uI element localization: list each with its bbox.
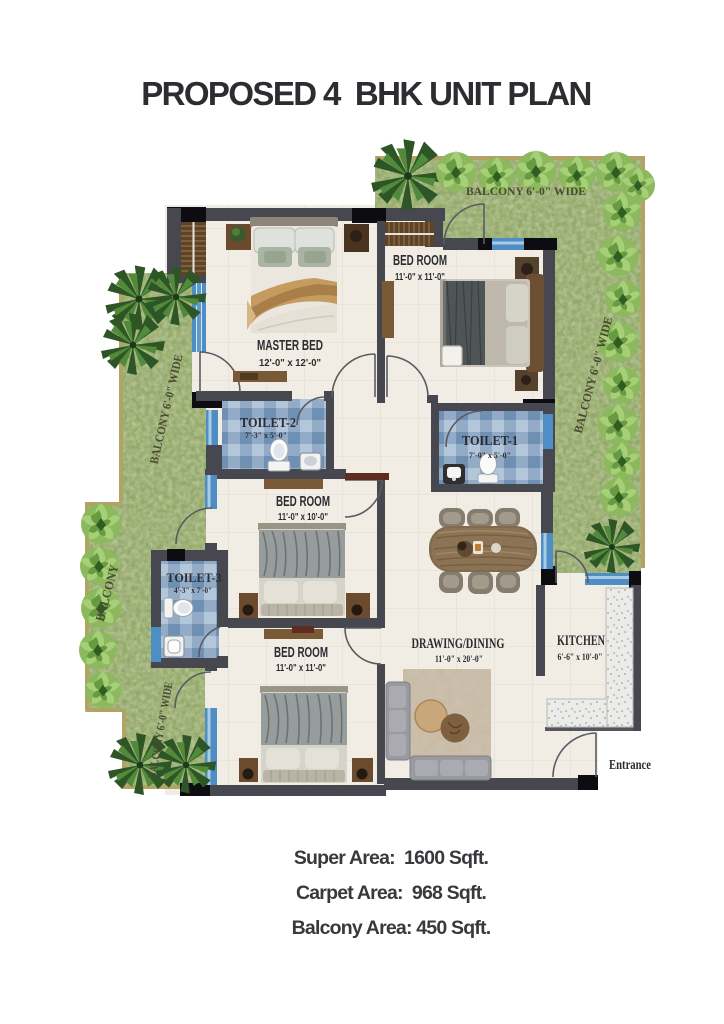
svg-text:11'-0" x 10'-0": 11'-0" x 10'-0"	[278, 512, 328, 523]
svg-text:11'-0" x 11'-0": 11'-0" x 11'-0"	[276, 663, 326, 674]
svg-text:11'-0" x 20'-0": 11'-0" x 20'-0"	[435, 655, 483, 665]
svg-text:BED ROOM: BED ROOM	[274, 645, 328, 661]
svg-text:BED ROOM: BED ROOM	[393, 253, 447, 269]
svg-text:TOILET-3: TOILET-3	[167, 571, 222, 585]
svg-text:BALCONY 6'-0" WIDE: BALCONY 6'-0" WIDE	[466, 184, 586, 198]
svg-text:4'-3" x 7'-0": 4'-3" x 7'-0"	[174, 586, 212, 595]
svg-text:11'-0" x 11'-0": 11'-0" x 11'-0"	[395, 272, 445, 283]
svg-text:MASTER BED: MASTER BED	[257, 338, 323, 354]
svg-text:KITCHEN: KITCHEN	[557, 633, 605, 649]
svg-text:DRAWING/DINING: DRAWING/DINING	[412, 636, 505, 652]
svg-text:7'-0" x 5'-0": 7'-0" x 5'-0"	[469, 450, 511, 460]
svg-text:BED ROOM: BED ROOM	[276, 494, 330, 510]
svg-text:12'-0" x 12'-0": 12'-0" x 12'-0"	[259, 358, 321, 369]
svg-text:TOILET-1: TOILET-1	[462, 434, 518, 449]
svg-text:TOILET-2: TOILET-2	[240, 416, 296, 431]
svg-text:Entrance: Entrance	[609, 758, 651, 773]
svg-text:7'-3" x 5'-0": 7'-3" x 5'-0"	[245, 430, 287, 440]
svg-text:6'-6" x 10'-0": 6'-6" x 10'-0"	[558, 653, 603, 663]
